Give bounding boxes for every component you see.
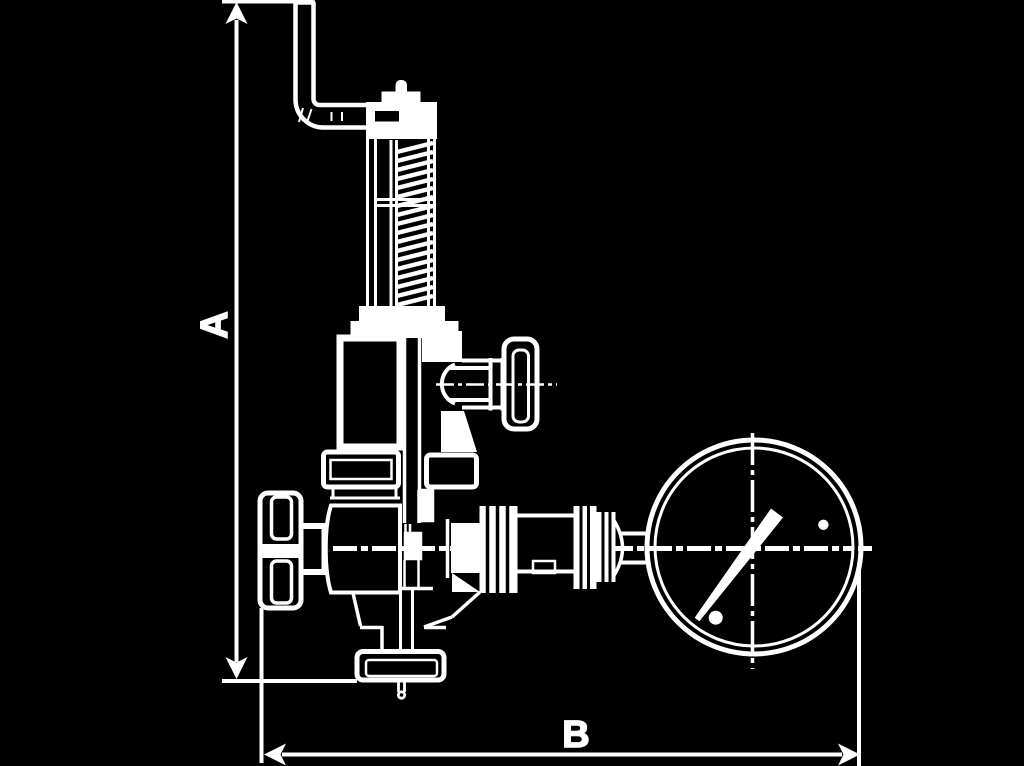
svg-text:A: A xyxy=(194,311,236,338)
svg-text:B: B xyxy=(562,714,589,756)
